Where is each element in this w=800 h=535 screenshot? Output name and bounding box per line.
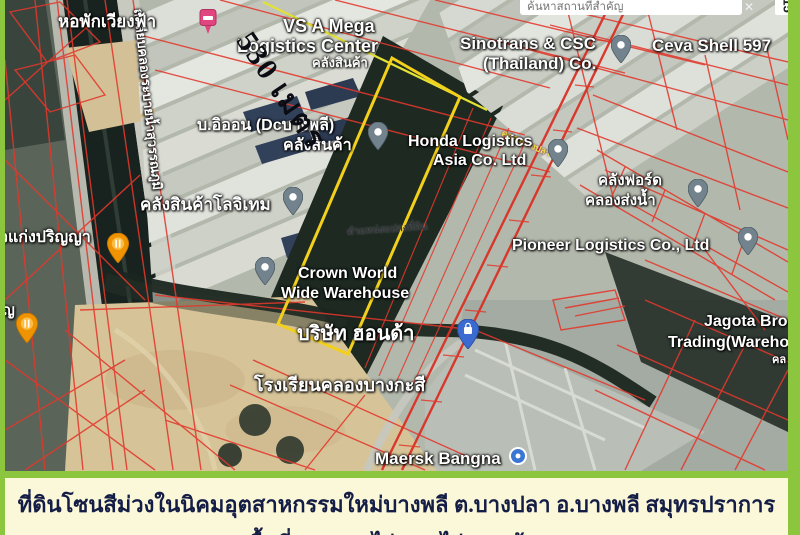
frame-left <box>0 0 5 535</box>
label-maersk: Maersk Bangna <box>375 450 501 468</box>
label-ceva-shell: Ceva Shell 597 <box>652 37 771 55</box>
caption-line2-post: ไร่ ขายไร่ละ 8 ล้าน <box>367 531 552 535</box>
caption-line2: เนื้อที่ 28-3-88 ไร่ ขายไร่ละ 8 ล้าน <box>5 526 788 535</box>
pin-pioneer[interactable] <box>738 227 758 260</box>
map-pin-icon <box>611 35 631 63</box>
corner-badge[interactable]: 15 <box>775 0 788 15</box>
shopping-pin-icon <box>457 319 479 349</box>
label-vsamega-3: คลังสินค้า <box>312 56 368 70</box>
caption-line1: ที่ดินโซนสีม่วงในนิคมอุตสาหกรรมใหม่บางพล… <box>5 487 788 522</box>
map-pin-icon <box>738 227 758 255</box>
search-input[interactable] <box>520 0 742 15</box>
label-dorm: หอพักเวียงฟ้า <box>58 13 156 31</box>
caption-panel: ที่ดินโซนสีม่วงในนิคมอุตสาหกรรมใหม่บางพล… <box>5 471 788 535</box>
label-sinotrans-2: (Thailand) Co. <box>483 55 596 73</box>
label-ford-2: คลองส่งน้ำ <box>585 193 656 209</box>
label-school: โรงเรียนคลองบางกะสี <box>254 376 425 395</box>
pin-logitem[interactable] <box>283 187 303 220</box>
frame-right <box>788 0 800 535</box>
label-jagota-3: คล <box>772 355 786 367</box>
label-left-edge-partial: ญ <box>5 303 15 319</box>
map-area: 530 เมตร ถ.เลียบคลองระบายน้ำสุวรรณภูมิ ค… <box>5 0 788 471</box>
label-honda-logistics-1: Honda Logistics <box>408 134 532 151</box>
pin-restaurant-2[interactable] <box>16 313 38 348</box>
label-jagota-1: Jagota Bro <box>704 314 788 331</box>
map-pin-icon <box>368 122 388 150</box>
lodging-pin-icon <box>200 9 217 35</box>
pin-lodging[interactable] <box>200 9 217 40</box>
pin-honda-logistics[interactable] <box>548 139 568 172</box>
dot-pin-icon <box>509 447 527 465</box>
pin-maersk[interactable] <box>509 447 527 470</box>
label-jagota-2: Trading(Wareho <box>668 335 788 352</box>
label-crown-1: Crown World <box>298 266 397 283</box>
close-icon[interactable]: ✕ <box>741 0 757 14</box>
label-sinotrans-1: Sinotrans & CSC <box>460 35 596 53</box>
label-logitem: คลังสินค้าโลจิเทม <box>140 196 271 214</box>
label-kaeng-parinya: วแก่งปริญญา <box>5 230 91 247</box>
label-vsamega-1: VS A Mega <box>283 17 375 36</box>
caption-line2-highlight: 28-3-88 <box>297 531 367 535</box>
label-pioneer: Pioneer Logistics Co., Ltd <box>512 238 709 255</box>
label-crown-2: Wide Warehouse <box>281 286 409 303</box>
restaurant-pin-icon <box>16 313 38 343</box>
caption-line2-pre: เนื้อที่ <box>241 531 297 535</box>
map-pin-icon <box>283 187 303 215</box>
pin-crown[interactable] <box>255 257 275 290</box>
pin-sinotrans[interactable] <box>611 35 631 68</box>
label-honda-logistics-2: Asia Co. Ltd <box>433 153 526 170</box>
map-pin-icon <box>688 179 708 207</box>
corner-badge-label: 15 <box>781 0 789 13</box>
pin-restaurant-1[interactable] <box>107 233 129 268</box>
pin-honda-company[interactable] <box>457 319 479 354</box>
map-pin-icon <box>255 257 275 285</box>
pin-aeon[interactable] <box>368 122 388 155</box>
label-honda-company: บริษัท ฮอนด้า <box>297 324 414 345</box>
label-ford-1: คลังฟอร์ด <box>598 173 662 189</box>
screenshot-root: 530 เมตร ถ.เลียบคลองระบายน้ำสุวรรณภูมิ ค… <box>0 0 800 535</box>
map-pin-icon <box>548 139 568 167</box>
restaurant-pin-icon <box>107 233 129 263</box>
pin-ford[interactable] <box>688 179 708 212</box>
